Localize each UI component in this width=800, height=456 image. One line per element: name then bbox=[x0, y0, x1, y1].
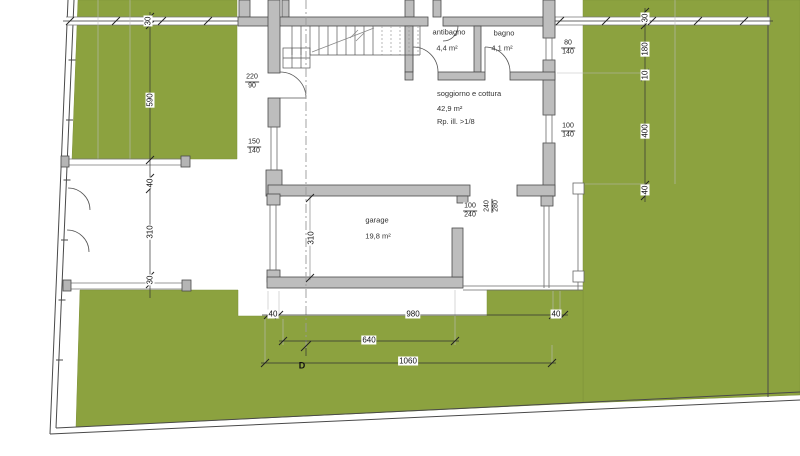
wall-upper-stub bbox=[405, 0, 414, 17]
dim-bottom-640: 640 bbox=[361, 336, 376, 345]
stair-direction-line bbox=[312, 28, 374, 52]
antibagno-door-swing bbox=[413, 47, 438, 72]
section-line bbox=[301, 0, 311, 356]
gate-swing bbox=[68, 188, 90, 210]
dim-bottom-40-left: 40 bbox=[268, 310, 279, 319]
wall-upper-stub bbox=[433, 0, 441, 17]
dim-left-30: 30 bbox=[146, 275, 155, 286]
dim-window-left: 150 140 bbox=[247, 139, 261, 156]
wall-upper-stub bbox=[282, 0, 289, 17]
dim-right-400: 400 bbox=[641, 123, 650, 138]
dim-garage-door: 100 240 bbox=[463, 203, 477, 220]
patio-post bbox=[573, 183, 584, 194]
garage-corner bbox=[267, 194, 280, 205]
floor-plan-canvas: 30 590 40 310 30 30 180 10 400 40 310 40… bbox=[0, 0, 800, 456]
garden-right bbox=[583, 0, 800, 403]
dim-fence-30: 30 bbox=[144, 16, 153, 27]
room-garage-area: 19,8 m² bbox=[365, 232, 390, 241]
wall-west bbox=[268, 98, 280, 127]
wall-antibagno-left bbox=[405, 26, 413, 72]
garage-wall-south bbox=[267, 277, 463, 288]
dim-right-10: 10 bbox=[641, 70, 650, 81]
dim-window-bagno: 80 140 bbox=[561, 40, 575, 57]
dim-bottom-40-right: 40 bbox=[551, 310, 562, 319]
wall-bath-south bbox=[510, 72, 555, 80]
room-garage-name: garage bbox=[365, 216, 388, 225]
dim-right-30: 30 bbox=[641, 13, 650, 24]
room-antibagno-name: antibagno bbox=[433, 28, 466, 37]
wall-north bbox=[238, 17, 428, 26]
wall-bath-south bbox=[405, 72, 413, 80]
dim-left-40: 40 bbox=[146, 178, 155, 189]
wall-north bbox=[443, 17, 555, 26]
wall-bagno-divider bbox=[474, 26, 481, 72]
section-marker-d: D bbox=[298, 362, 307, 371]
wall-west bbox=[268, 0, 280, 73]
wall-upper-left-stub bbox=[239, 0, 250, 17]
room-soggiorno-note: Rp. ill. >1/8 bbox=[437, 117, 475, 126]
dim-left-590: 590 bbox=[146, 92, 155, 107]
gate-swing bbox=[67, 230, 89, 252]
patio-post bbox=[573, 271, 584, 282]
dim-entrance-door: 220 90 bbox=[245, 74, 259, 91]
dim-garage-310: 310 bbox=[307, 230, 316, 245]
staircase bbox=[283, 26, 420, 68]
wall-bath-south bbox=[438, 72, 485, 80]
wall-south-east bbox=[517, 185, 555, 196]
dim-left-310: 310 bbox=[146, 224, 155, 239]
wall-living-south bbox=[268, 185, 470, 196]
room-bagno-area: 4,1 m² bbox=[491, 44, 512, 53]
wall-east bbox=[543, 60, 555, 115]
room-bagno-name: bagno bbox=[494, 29, 515, 38]
room-soggiorno-name: soggiorno e cottura bbox=[437, 89, 501, 98]
room-antibagno-area: 4,4 m² bbox=[436, 44, 457, 53]
dim-right-180: 180 bbox=[641, 41, 650, 56]
dim-window-living: 100 140 bbox=[561, 123, 575, 140]
dim-bottom-980: 980 bbox=[405, 310, 420, 319]
wall-east bbox=[543, 0, 555, 38]
garage-wall-east bbox=[452, 228, 463, 277]
dim-bottom-1060: 1060 bbox=[398, 357, 418, 366]
dim-right-40: 40 bbox=[641, 185, 650, 196]
wall-pier bbox=[541, 196, 553, 206]
entrance-door-swing bbox=[280, 72, 306, 98]
dim-patio-opening: 240 280 bbox=[484, 199, 501, 213]
floor-plan-drawing bbox=[0, 0, 800, 456]
room-soggiorno-area: 42,9 m² bbox=[437, 104, 462, 113]
